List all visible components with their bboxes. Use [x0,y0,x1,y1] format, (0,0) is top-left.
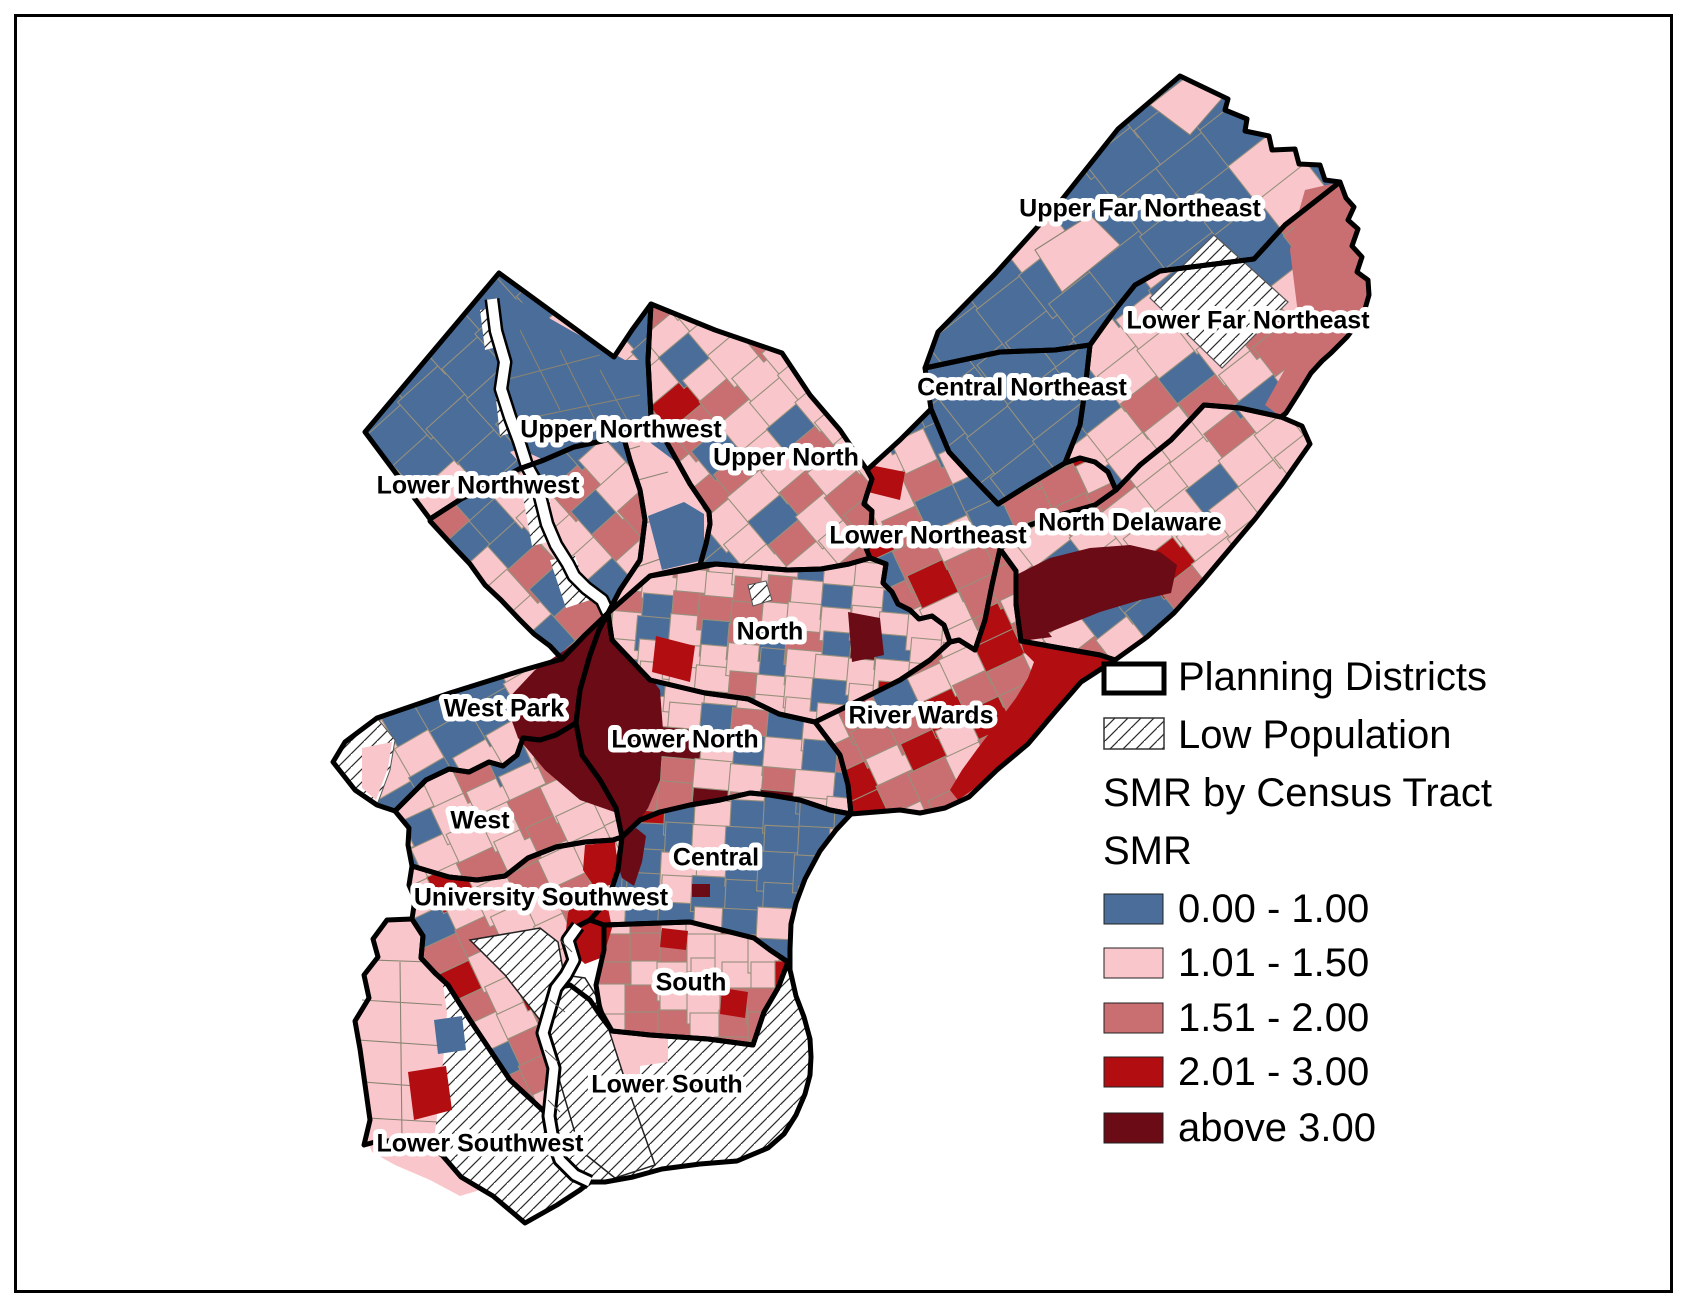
svg-text:University Southwest: University Southwest [414,884,669,912]
svg-text:Lower Northeast: Lower Northeast [829,522,1027,550]
svg-text:West: West [450,807,510,835]
svg-text:Low Population: Low Population [1178,713,1452,757]
svg-text:0.00 - 1.00: 0.00 - 1.00 [1178,887,1369,931]
svg-text:Planning Districts: Planning Districts [1178,655,1487,699]
svg-text:Central: Central [673,844,759,872]
svg-text:Upper Far Northeast: Upper Far Northeast [1019,195,1261,223]
svg-text:SMR: SMR [1103,829,1192,873]
svg-text:North: North [737,618,804,646]
svg-text:Central Northeast: Central Northeast [917,374,1127,402]
svg-text:Lower Northwest: Lower Northwest [377,472,580,500]
svg-text:Lower North: Lower North [611,726,758,754]
svg-text:2.01 - 3.00: 2.01 - 3.00 [1178,1050,1369,1094]
svg-text:above 3.00: above 3.00 [1178,1106,1376,1150]
svg-text:North Delaware: North Delaware [1038,509,1221,537]
svg-text:River Wards: River Wards [849,702,994,730]
svg-text:1.01 - 1.50: 1.01 - 1.50 [1178,941,1369,985]
svg-text:West Park: West Park [444,695,565,723]
svg-text:Lower Far Northeast: Lower Far Northeast [1126,307,1370,335]
svg-text:1.51 - 2.00: 1.51 - 2.00 [1178,996,1369,1040]
svg-text:Lower South: Lower South [591,1071,742,1099]
svg-text:Lower Southwest: Lower Southwest [377,1130,585,1158]
svg-text:South: South [656,969,727,997]
svg-text:SMR by Census Tract: SMR by Census Tract [1103,771,1492,815]
svg-text:Upper Northwest: Upper Northwest [520,416,722,444]
svg-text:Upper North: Upper North [713,444,859,472]
